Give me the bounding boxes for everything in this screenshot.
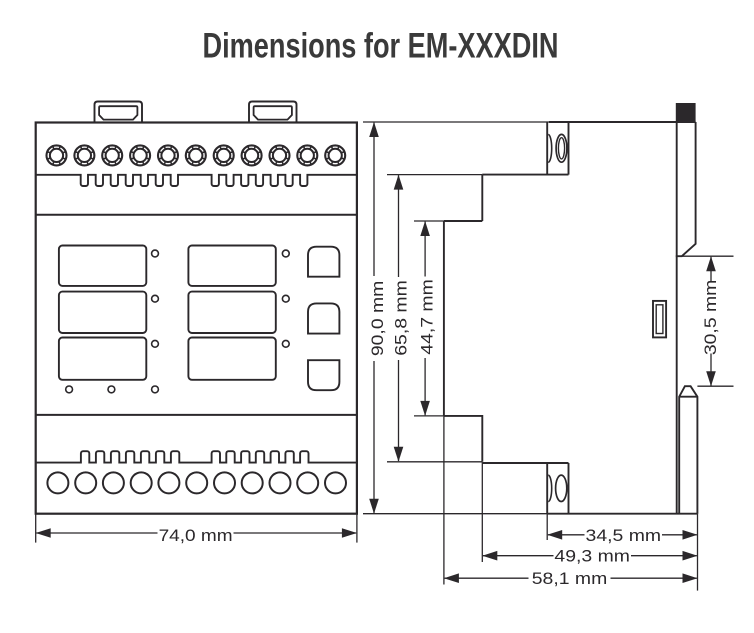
svg-text:44,7 mm: 44,7 mm <box>419 279 437 355</box>
svg-text:90,0 mm: 90,0 mm <box>369 281 387 357</box>
svg-text:49,3 mm: 49,3 mm <box>554 548 630 566</box>
svg-text:58,1 mm: 58,1 mm <box>532 570 608 588</box>
svg-text:Dimensions for EM-XXXDIN: Dimensions for EM-XXXDIN <box>203 27 559 66</box>
svg-text:30,5 mm: 30,5 mm <box>702 280 720 356</box>
svg-text:34,5 mm: 34,5 mm <box>586 527 662 545</box>
svg-text:74,0 mm: 74,0 mm <box>159 527 233 545</box>
svg-text:65,8 mm: 65,8 mm <box>393 280 411 356</box>
